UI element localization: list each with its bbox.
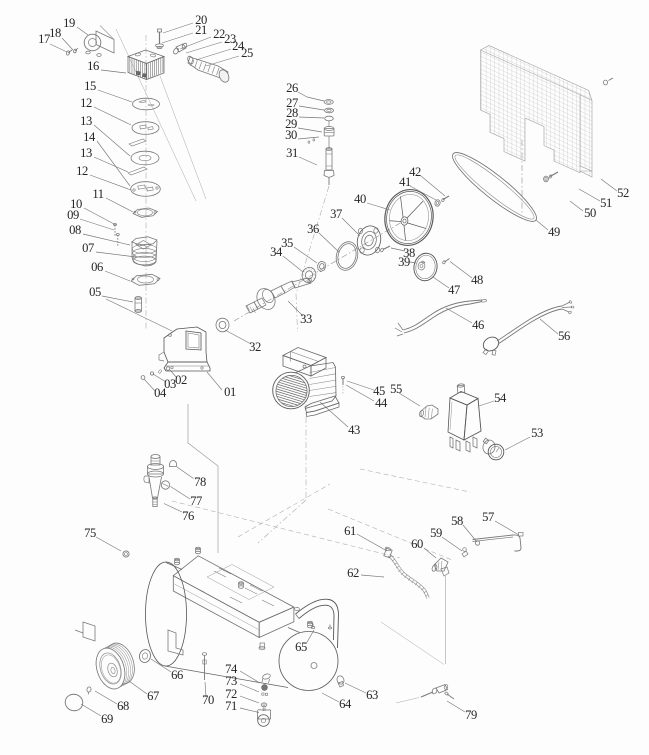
svg-text:63: 63 (366, 688, 378, 702)
svg-text:67: 67 (147, 689, 159, 703)
svg-text:56: 56 (558, 329, 570, 343)
svg-text:26: 26 (286, 81, 298, 95)
svg-text:76: 76 (182, 509, 194, 523)
svg-text:57: 57 (482, 510, 494, 524)
svg-text:55: 55 (390, 382, 402, 396)
svg-text:47: 47 (448, 283, 460, 297)
svg-text:04: 04 (154, 386, 167, 400)
svg-text:65: 65 (295, 640, 307, 654)
svg-text:14: 14 (83, 130, 96, 144)
svg-text:64: 64 (339, 697, 352, 711)
svg-text:36: 36 (307, 222, 319, 236)
svg-text:30: 30 (285, 128, 297, 142)
svg-text:12: 12 (76, 164, 88, 178)
svg-text:37: 37 (330, 207, 342, 221)
svg-text:42: 42 (409, 165, 421, 179)
svg-text:77: 77 (190, 494, 202, 508)
svg-text:79: 79 (465, 708, 477, 722)
svg-text:39: 39 (398, 255, 410, 269)
svg-text:13: 13 (80, 146, 92, 160)
svg-text:01: 01 (224, 385, 236, 399)
svg-text:73: 73 (225, 674, 237, 688)
svg-text:13: 13 (80, 114, 92, 128)
svg-text:31: 31 (286, 146, 298, 160)
svg-text:50: 50 (584, 206, 596, 220)
svg-text:07: 07 (82, 241, 94, 255)
svg-text:59: 59 (430, 526, 442, 540)
svg-text:05: 05 (89, 285, 101, 299)
svg-text:25: 25 (241, 46, 253, 60)
svg-text:62: 62 (347, 566, 359, 580)
svg-text:02: 02 (175, 373, 187, 387)
svg-text:69: 69 (101, 712, 113, 726)
svg-text:11: 11 (92, 187, 103, 201)
svg-text:75: 75 (84, 526, 96, 540)
svg-text:40: 40 (354, 192, 366, 206)
svg-text:72: 72 (225, 687, 237, 701)
svg-text:12: 12 (80, 96, 92, 110)
svg-text:58: 58 (451, 514, 463, 528)
svg-text:43: 43 (348, 423, 360, 437)
svg-text:74: 74 (225, 662, 238, 676)
svg-text:66: 66 (171, 668, 183, 682)
svg-text:44: 44 (375, 396, 388, 410)
svg-text:15: 15 (84, 79, 96, 93)
svg-text:49: 49 (548, 225, 560, 239)
svg-text:48: 48 (471, 273, 483, 287)
svg-text:70: 70 (202, 693, 214, 707)
svg-text:46: 46 (472, 318, 484, 332)
svg-text:16: 16 (87, 59, 99, 73)
svg-text:19: 19 (63, 16, 75, 30)
svg-text:54: 54 (494, 391, 507, 405)
svg-text:68: 68 (117, 699, 129, 713)
svg-text:32: 32 (249, 340, 261, 354)
svg-text:08: 08 (69, 223, 81, 237)
svg-text:71: 71 (225, 699, 237, 713)
svg-text:10: 10 (70, 197, 82, 211)
svg-text:61: 61 (344, 524, 356, 538)
svg-text:78: 78 (194, 475, 206, 489)
svg-text:33: 33 (300, 312, 312, 326)
svg-text:51: 51 (600, 196, 612, 210)
svg-text:52: 52 (617, 186, 629, 200)
svg-text:18: 18 (49, 26, 61, 40)
svg-text:60: 60 (411, 537, 423, 551)
svg-text:45: 45 (373, 384, 385, 398)
svg-text:35: 35 (281, 236, 293, 250)
svg-text:06: 06 (91, 260, 103, 274)
svg-text:21: 21 (195, 23, 207, 37)
svg-text:53: 53 (531, 426, 543, 440)
